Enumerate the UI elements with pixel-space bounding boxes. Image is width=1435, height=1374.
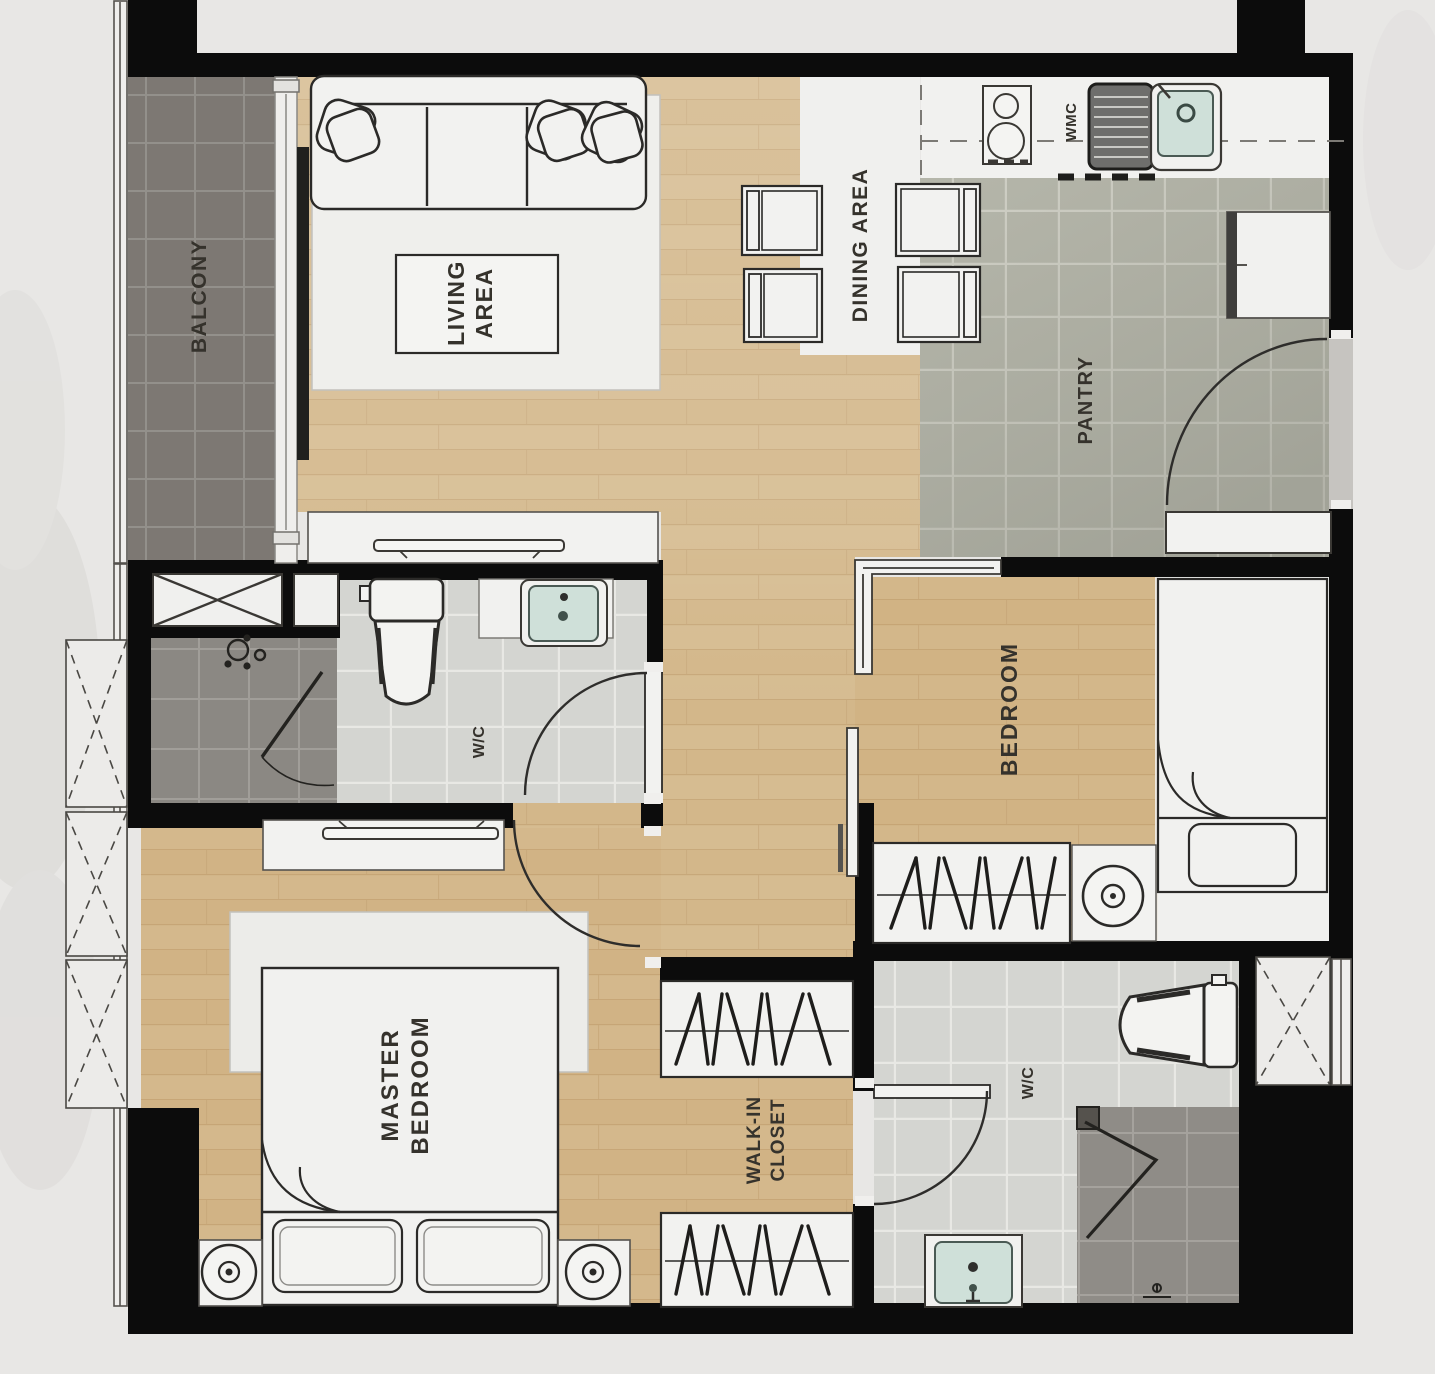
svg-text:PANTRY: PANTRY (1075, 356, 1097, 445)
svg-text:MASTER: MASTER (377, 1028, 404, 1141)
svg-text:AREA: AREA (471, 267, 497, 338)
svg-text:W/C: W/C (1020, 1067, 1037, 1100)
svg-text:LIVING: LIVING (443, 260, 469, 346)
svg-text:WALK-IN: WALK-IN (744, 1096, 765, 1184)
svg-text:BEDROOM: BEDROOM (407, 1015, 434, 1154)
svg-text:CLOSET: CLOSET (768, 1098, 789, 1181)
svg-text:WMC: WMC (1063, 103, 1080, 142)
svg-text:BEDROOM: BEDROOM (996, 642, 1022, 776)
svg-text:W/C: W/C (471, 726, 488, 759)
svg-text:DINING AREA: DINING AREA (849, 168, 872, 323)
svg-text:BALCONY: BALCONY (188, 239, 211, 353)
